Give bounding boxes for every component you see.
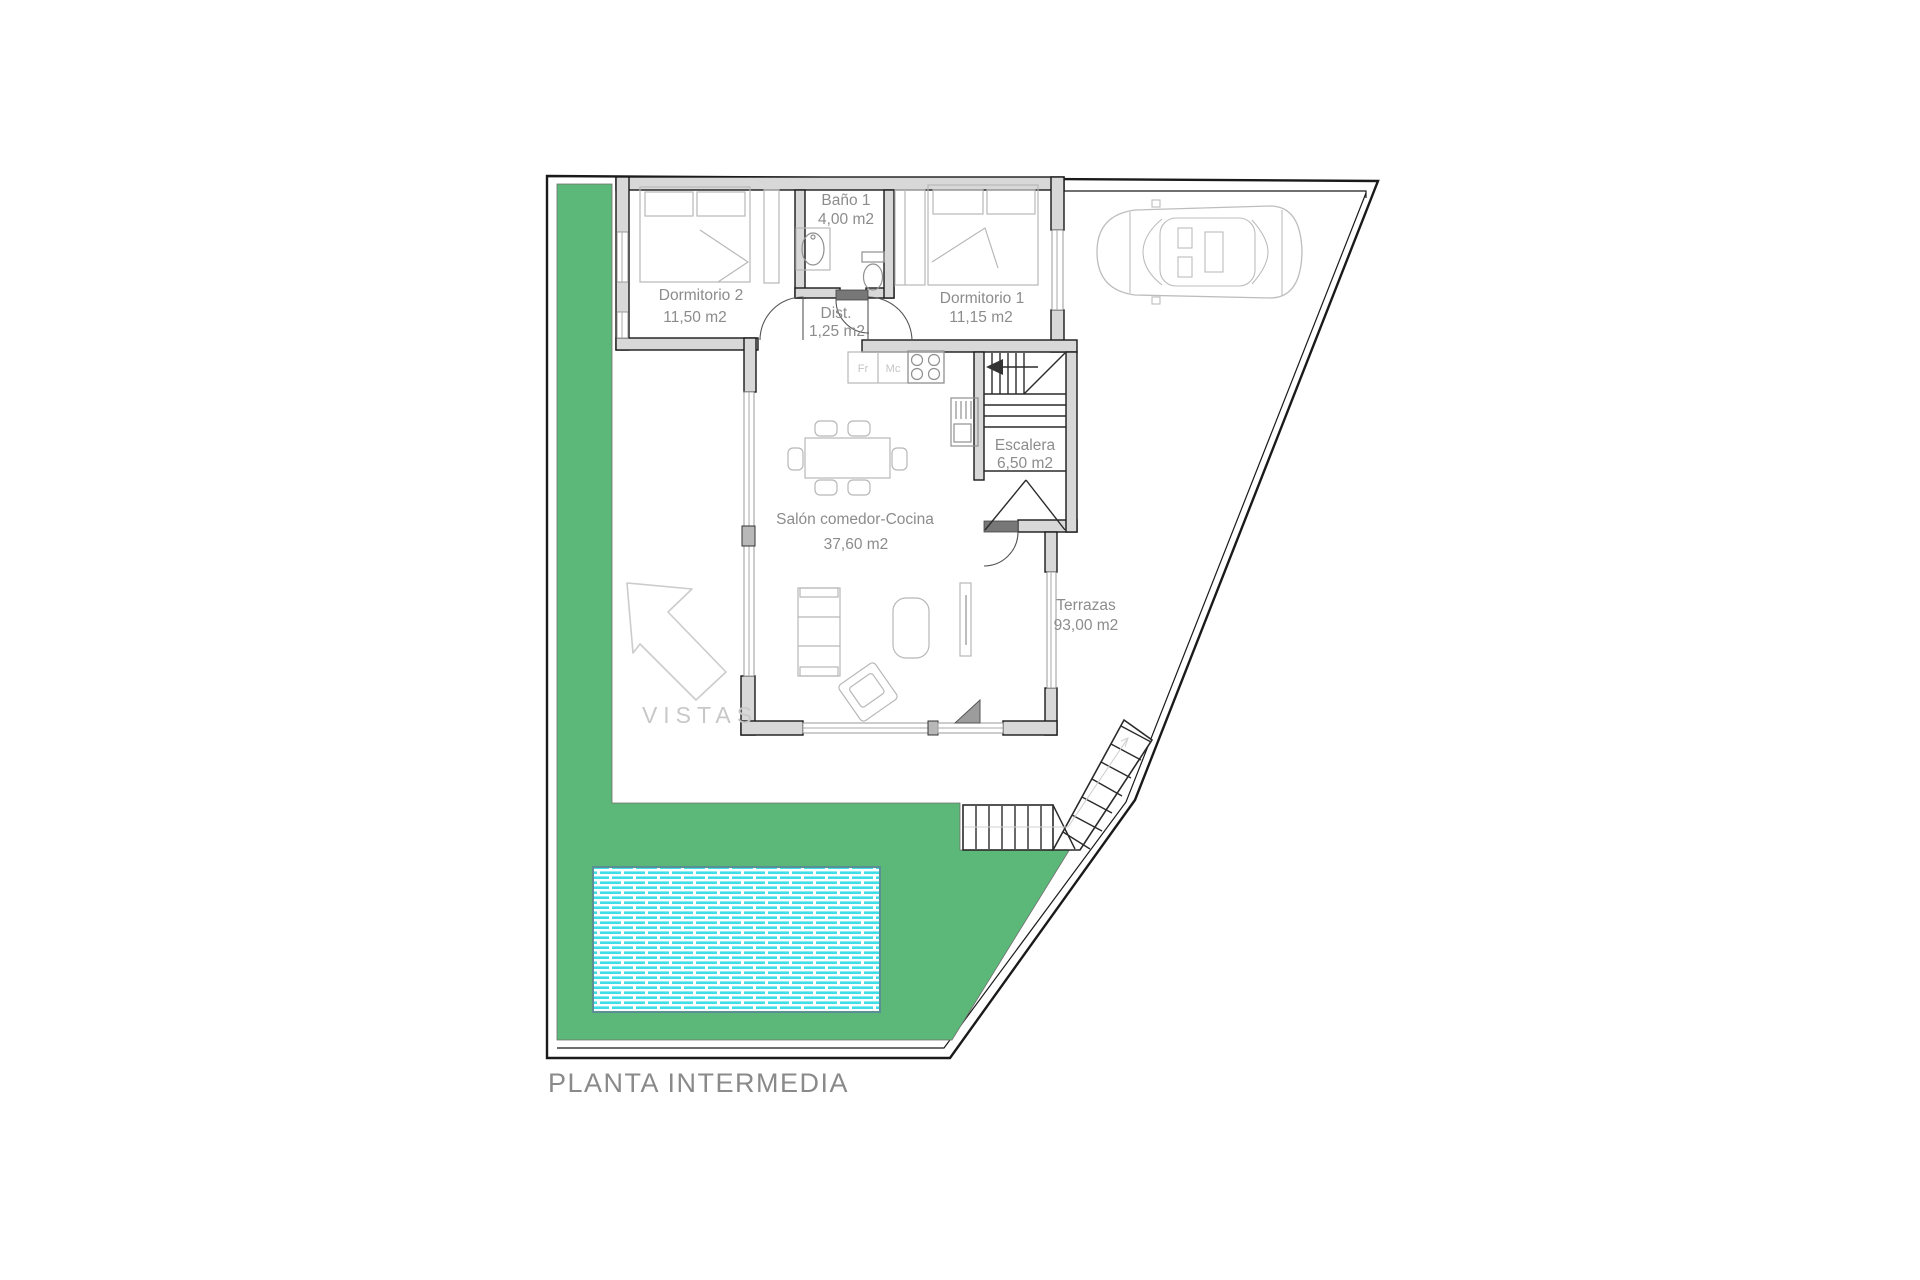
- sofa: [798, 588, 840, 676]
- vistas-arrow-icon: [627, 583, 726, 700]
- room-label-dormitorio2-area: 11,50 m2: [663, 309, 726, 326]
- tv-unit: [960, 583, 971, 656]
- exterior-stairs: [963, 720, 1152, 850]
- kitchen-fixtures: Fr Mc: [848, 351, 978, 446]
- room-label-terrazas-name: Terrazas: [1056, 597, 1116, 614]
- vistas-label: VISTAS: [642, 702, 758, 728]
- fridge-label: Fr: [858, 363, 869, 375]
- room-label-salon-area: 37,60 m2: [824, 536, 889, 553]
- floor-plan-page: Fr Mc: [0, 0, 1920, 1280]
- bathroom-fixtures: [796, 228, 884, 290]
- microwave-label: Mc: [886, 363, 901, 375]
- car-icon: [1097, 200, 1302, 304]
- bed-dormitorio1: [895, 185, 1038, 285]
- bed-dormitorio2: [640, 187, 779, 283]
- room-label-terrazas-area: 93,00 m2: [1054, 617, 1119, 634]
- floor-plan-drawing: Fr Mc: [0, 0, 1920, 1280]
- room-label-escalera-name: Escalera: [995, 437, 1056, 454]
- room-label-dormitorio2-name: Dormitorio 2: [659, 287, 743, 304]
- room-label-escalera-area: 6,50 m2: [997, 455, 1053, 472]
- swimming-pool: [593, 867, 880, 1012]
- chaise: [893, 598, 929, 658]
- room-label-bano1-area: 4,00 m2: [818, 211, 874, 228]
- room-label-dist-name: Dist.: [821, 305, 852, 322]
- plan-title: PLANTA INTERMEDIA: [548, 1068, 849, 1098]
- room-label-salon-name: Salón comedor-Cocina: [776, 511, 934, 528]
- armchair: [837, 661, 898, 722]
- room-label-dist-area: 1,25 m2: [809, 323, 865, 340]
- room-label-dormitorio1-area: 11,15 m2: [949, 309, 1012, 326]
- dining-table: [788, 421, 907, 495]
- room-label-bano1-name: Baño 1: [821, 192, 870, 209]
- corner-element: [955, 700, 980, 723]
- room-label-dormitorio1-name: Dormitorio 1: [940, 290, 1024, 307]
